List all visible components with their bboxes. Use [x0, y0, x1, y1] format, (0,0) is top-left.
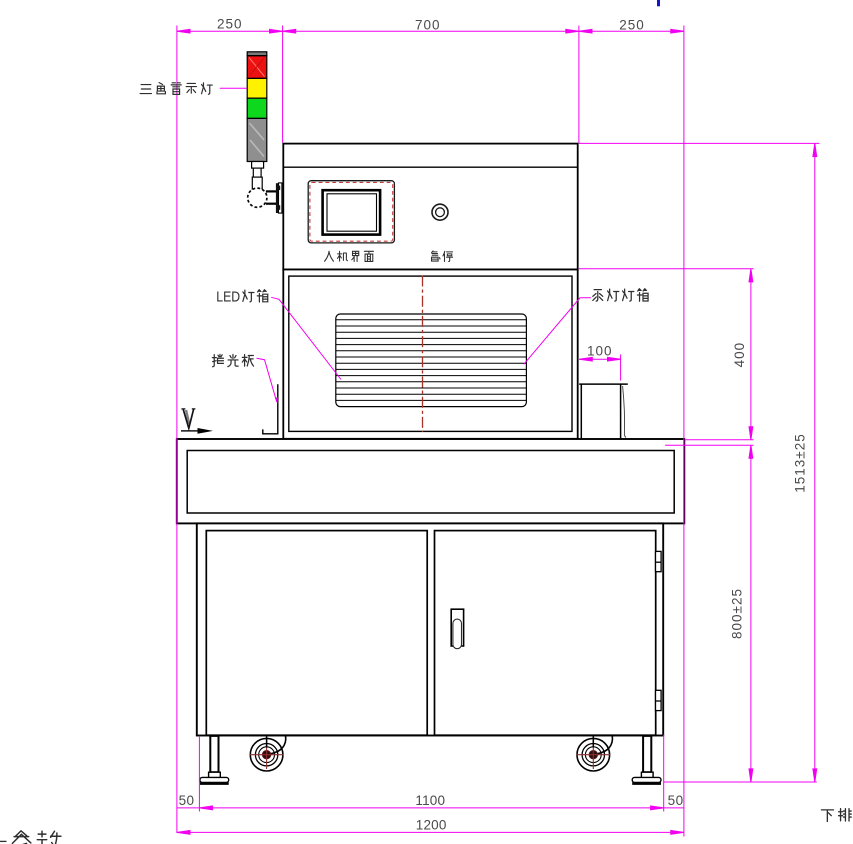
- svg-text:250: 250: [217, 16, 243, 31]
- svg-text:100: 100: [587, 343, 613, 358]
- svg-text:1513±25: 1513±25: [793, 433, 808, 492]
- svg-text:250: 250: [619, 17, 645, 32]
- svg-text:50: 50: [668, 793, 684, 808]
- svg-text:1200: 1200: [416, 818, 447, 833]
- svg-text:LED: LED: [216, 289, 240, 305]
- svg-text:50: 50: [179, 793, 195, 808]
- svg-text:800±25: 800±25: [730, 588, 745, 639]
- svg-text:400: 400: [732, 342, 747, 368]
- svg-text:1100: 1100: [415, 793, 445, 808]
- svg-text:700: 700: [415, 17, 441, 32]
